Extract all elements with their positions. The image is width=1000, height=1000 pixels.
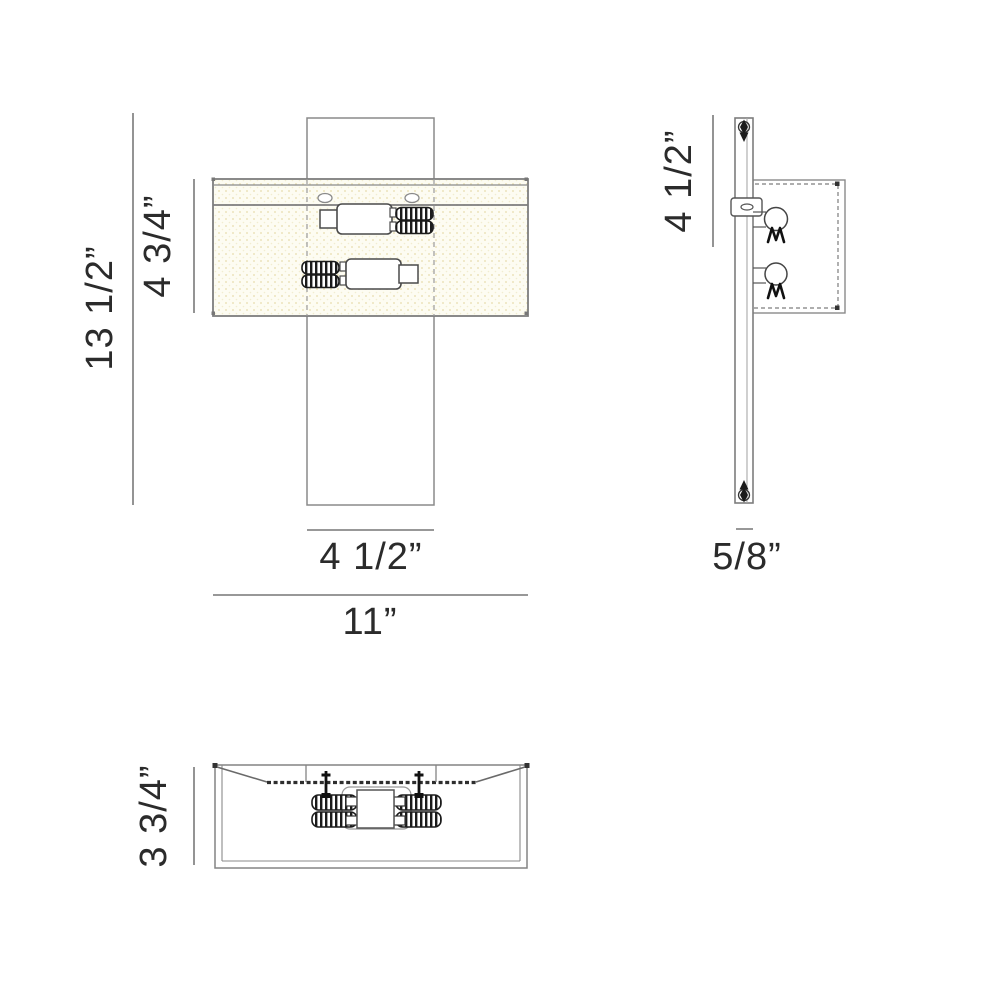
dimension-label-total-height: 13 1/2”	[81, 213, 119, 403]
socket-nub	[340, 262, 346, 271]
lamp-filament-symbol	[768, 284, 784, 298]
socket-thread-tube	[302, 275, 339, 288]
socket-end-circle	[765, 263, 787, 285]
glass-shade	[213, 179, 528, 316]
dimension-label-backplate-width: 4 1/2”	[271, 538, 471, 576]
corner-fastener	[835, 182, 840, 187]
socket-nub	[390, 222, 396, 231]
corner-fastener	[213, 763, 218, 768]
dimension-label-total-width: 11”	[270, 603, 470, 641]
lamp-side-lower	[753, 263, 787, 298]
dimension-drawing-canvas: 13 1/2” 4 3/4” 4 1/2” 11” 4 1/2” 5/8” 3 …	[0, 0, 1000, 1000]
corner-fastener	[525, 312, 529, 316]
socket-end-circle	[765, 208, 788, 231]
socket-nub	[340, 276, 346, 285]
socket-body	[346, 259, 401, 289]
dimension-label-depth: 3 3/4”	[135, 721, 173, 911]
backplate-side-outline	[735, 118, 753, 503]
socket-upper	[320, 204, 433, 234]
bottom-view	[194, 763, 530, 868]
side-view	[713, 115, 845, 529]
socket-nub	[394, 797, 405, 806]
bracket-slot	[741, 204, 753, 210]
socket-thread-tube	[396, 208, 433, 221]
corner-fastener	[212, 312, 216, 316]
socket-thread-tube	[396, 221, 433, 234]
dimension-label-plate-thickness: 5/8”	[647, 538, 847, 576]
corner-fastener	[525, 178, 529, 182]
corner-fastener	[835, 306, 840, 311]
socket-lower	[302, 259, 418, 289]
socket-nub	[346, 816, 357, 825]
socket-center-block	[357, 790, 394, 828]
socket-tab	[399, 265, 418, 283]
socket-tab	[320, 210, 339, 228]
socket-nub	[346, 797, 357, 806]
socket-body	[337, 204, 392, 234]
dimension-label-shade-height: 4 3/4”	[139, 151, 177, 341]
corner-fastener	[525, 763, 530, 768]
dimension-label-side-height: 4 1/2”	[660, 86, 698, 276]
socket-thread-tube	[302, 262, 339, 275]
socket-nub	[390, 208, 396, 217]
corner-fastener	[212, 178, 216, 182]
socket-nub	[394, 816, 405, 825]
keyhole-slot	[318, 194, 332, 203]
front-view	[133, 113, 528, 595]
keyhole-slot	[405, 194, 419, 203]
